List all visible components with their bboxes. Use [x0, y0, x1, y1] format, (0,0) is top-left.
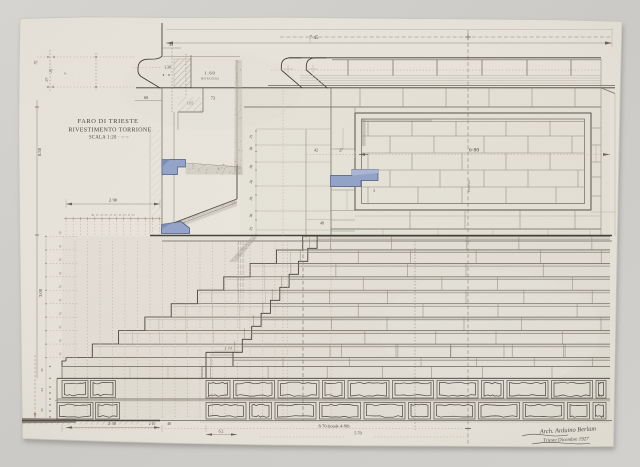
svg-text:42: 42: [314, 149, 318, 153]
svg-text:7·45: 7·45: [310, 36, 319, 41]
svg-text:30 . 17 . 17 . 17 . 17 . 17 .: 30 . 17 . 17 . 17 . 17 . 17 . 17 . 17 . …: [91, 214, 135, 217]
svg-text:3.00: 3.00: [38, 288, 43, 297]
svg-text:RIVESTIMENTO TORRIONE: RIVESTIMENTO TORRIONE: [68, 128, 151, 134]
svg-text:48: 48: [320, 222, 324, 226]
svg-text:46: 46: [40, 368, 44, 372]
svg-text:44: 44: [40, 388, 44, 392]
svg-text:3: 3: [373, 189, 375, 193]
svg-text:6.2: 6.2: [219, 430, 224, 434]
svg-text:60: 60: [144, 95, 148, 100]
svg-text:5·70: 5·70: [354, 431, 361, 436]
svg-text:27: 27: [339, 149, 343, 153]
svg-text:8.50: 8.50: [37, 147, 42, 156]
svg-text:1·70: 1·70: [225, 347, 232, 351]
svg-text:FREGIO: FREGIO: [467, 179, 471, 192]
svg-text:8·70 (totale 4·80): 8·70 (totale 4·80): [319, 424, 351, 429]
svg-text:FARO DI TRIESTE: FARO DI TRIESTE: [78, 118, 139, 125]
svg-text:1.60: 1.60: [204, 71, 215, 76]
svg-text:2·10: 2·10: [149, 422, 156, 426]
svg-text:48: 48: [40, 408, 44, 412]
svg-text:2·90: 2·90: [109, 198, 118, 203]
svg-text:SCALA 1:20 · ~·~: SCALA 1:20 · ~·~: [89, 136, 129, 141]
svg-text:PIETRA DURA: PIETRA DURA: [201, 78, 219, 81]
svg-text:1.30: 1.30: [164, 66, 171, 70]
svg-text:6·80: 6·80: [469, 148, 479, 154]
svg-text:2·30: 2·30: [108, 421, 116, 426]
svg-text:1.05: 1.05: [187, 102, 193, 106]
svg-text:48: 48: [167, 422, 171, 426]
svg-text:73: 73: [211, 96, 215, 101]
